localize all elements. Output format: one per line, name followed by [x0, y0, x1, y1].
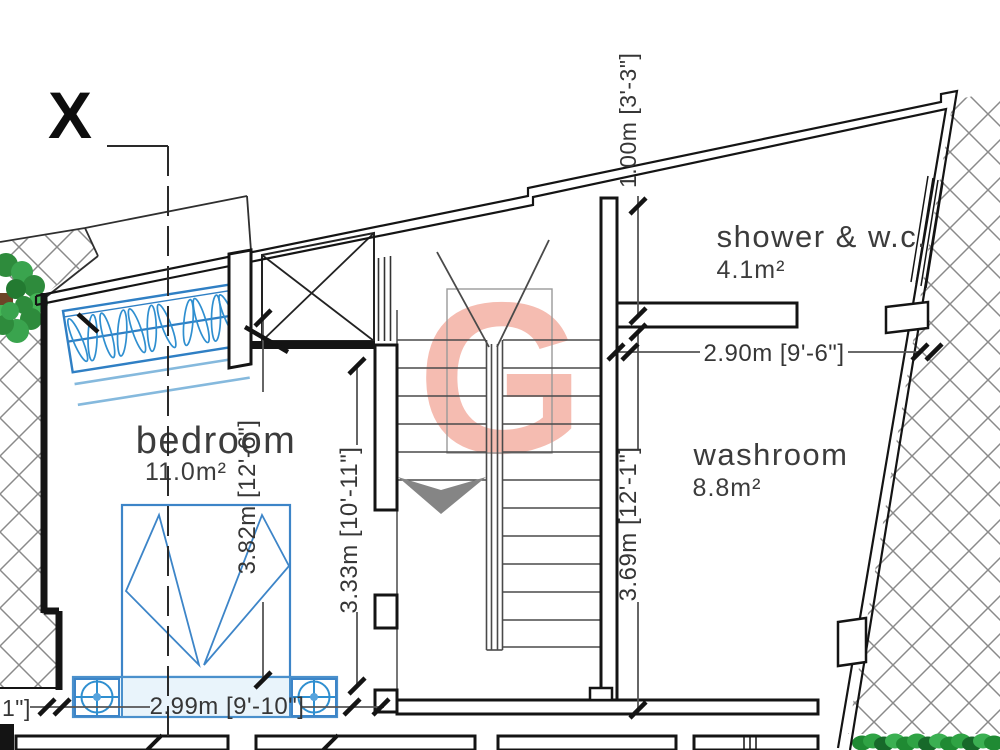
dim-shower-depth: 1.00m [3'-3"] — [615, 53, 641, 188]
dim-bedroom-depth: 3.82m [12'-6"] — [234, 420, 261, 575]
wardrobe — [63, 284, 250, 405]
dim-washroom-width: 2.90m [9'-6"] — [704, 340, 845, 367]
dim-washroom-depth: 3.69m [12'-1"] — [615, 447, 642, 602]
dim-hall-depth: 3.33m [10'-11"] — [336, 447, 363, 614]
washroom-label: washroom — [693, 437, 849, 472]
washroom-area: 8.8m² — [693, 474, 762, 502]
watermark-logo: G — [417, 257, 584, 498]
dim-clipped-left: 1"] — [2, 695, 31, 721]
bedroom-label: bedroom — [136, 420, 296, 462]
floor-plan-drawing: G — [0, 0, 1000, 750]
bed — [73, 505, 337, 717]
dim-bedroom-width: 2.99m [9'-10"] — [150, 693, 305, 720]
section-letter: X — [48, 78, 92, 152]
hatch-area-right — [848, 91, 1000, 734]
lower-floor-walls — [16, 735, 818, 750]
hedge — [852, 734, 1000, 750]
shower-label: shower & w.c. — [717, 219, 928, 254]
floor-plan-page: G — [0, 0, 1000, 750]
shower-area: 4.1m² — [717, 256, 786, 284]
door-jamb-lines — [379, 256, 391, 341]
bedroom-area: 11.0m² — [145, 458, 227, 486]
